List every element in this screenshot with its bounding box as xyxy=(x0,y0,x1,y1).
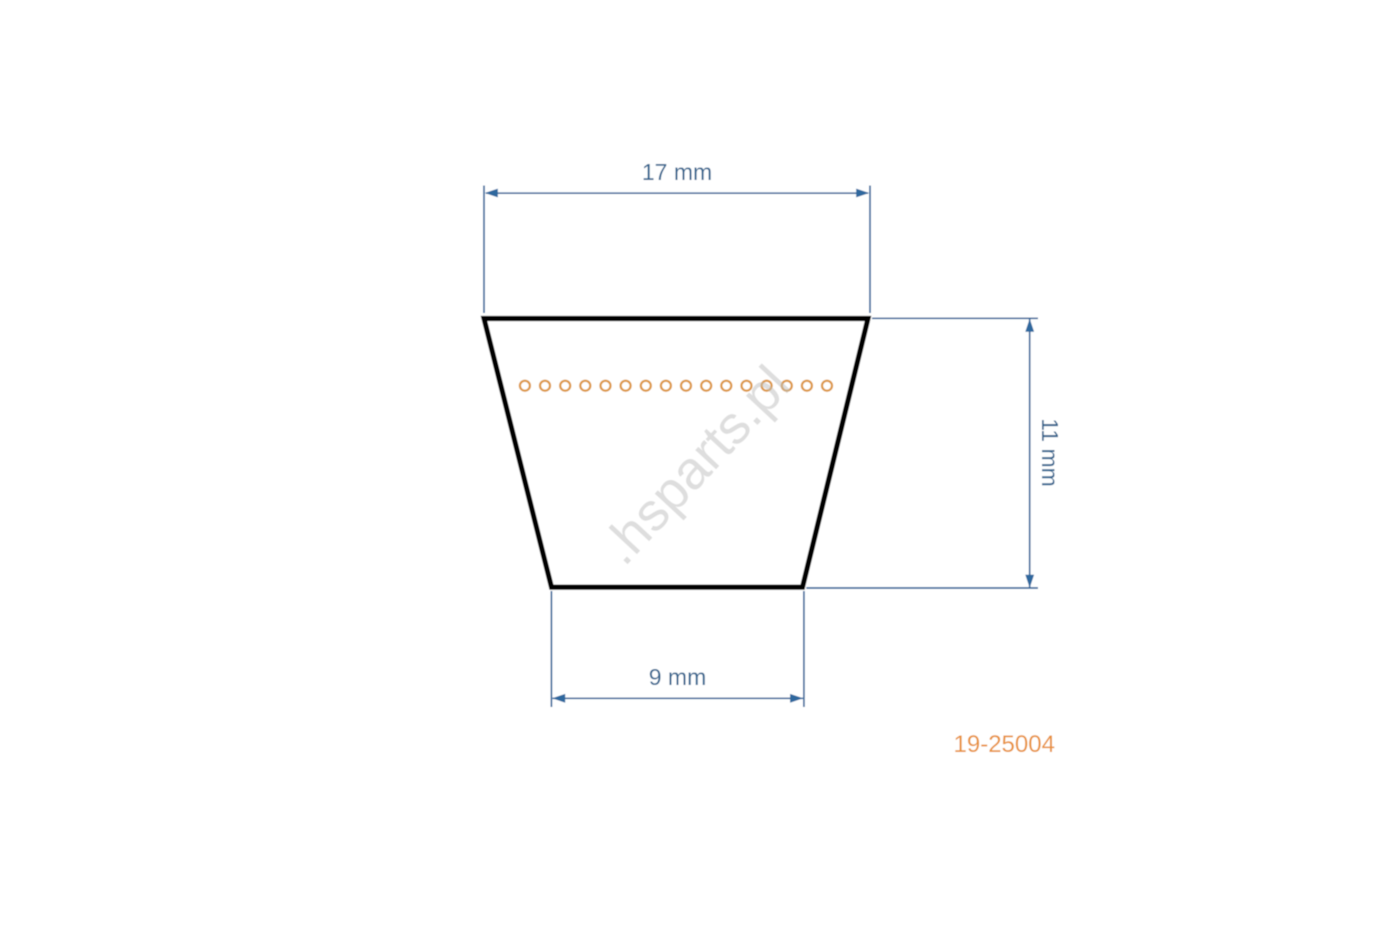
svg-text:17 mm: 17 mm xyxy=(642,159,712,185)
svg-text:9 mm: 9 mm xyxy=(649,664,707,690)
svg-text:11 mm: 11 mm xyxy=(1037,418,1063,487)
svg-text:19-25004: 19-25004 xyxy=(954,731,1055,758)
